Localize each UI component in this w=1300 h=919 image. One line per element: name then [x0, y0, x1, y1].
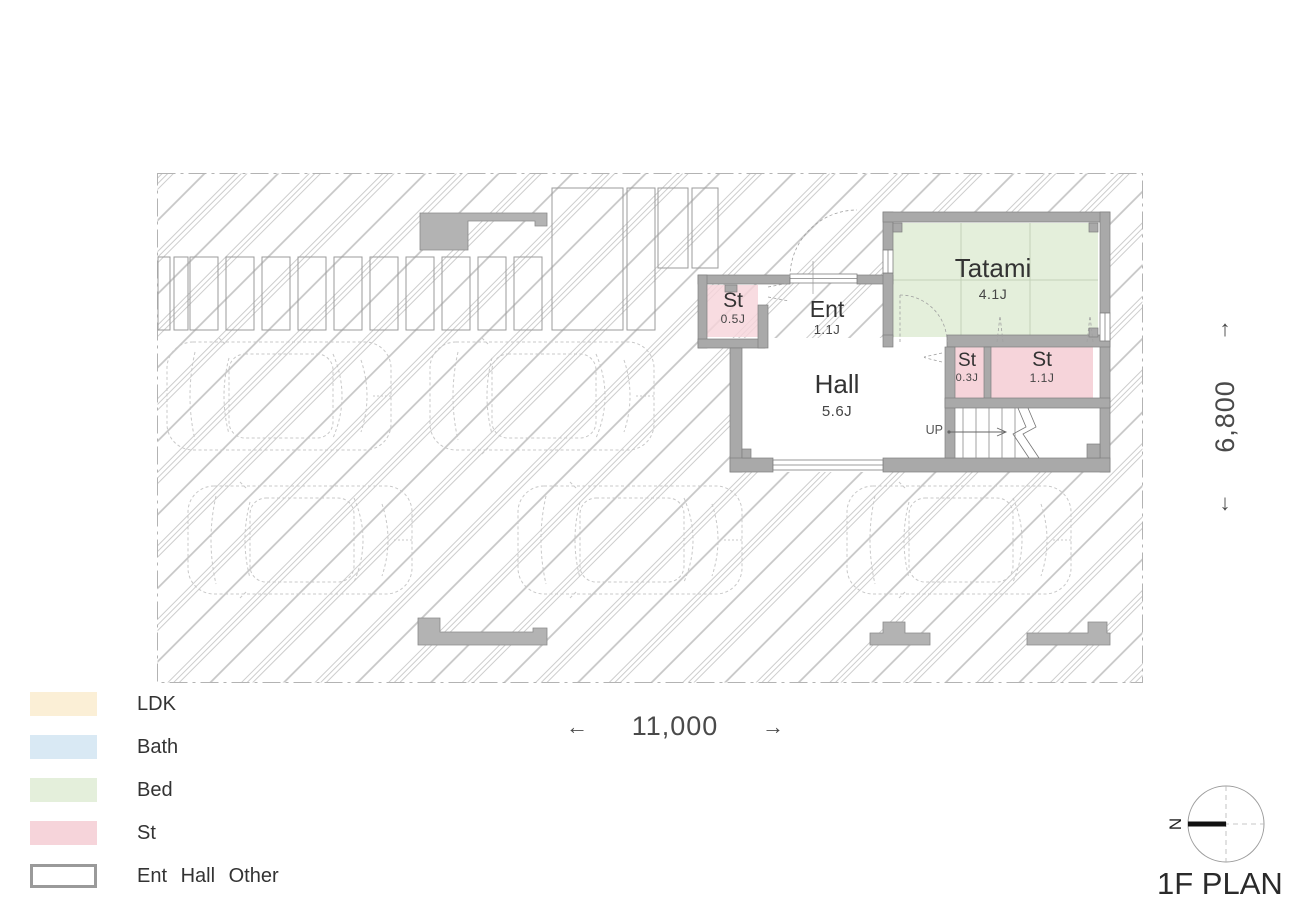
- legend-item-st: St: [30, 820, 279, 846]
- room-name: St: [721, 289, 746, 313]
- room-area: 4.1J: [955, 286, 1032, 302]
- room-name: Ent: [810, 296, 845, 322]
- room-label-hall: Hall 5.6J: [815, 370, 860, 420]
- arrow-left-icon: ←: [566, 714, 588, 740]
- legend-label: LDK: [137, 693, 176, 716]
- page-title: 1F PLAN: [1157, 866, 1283, 902]
- stairs-area: [955, 408, 1100, 458]
- room-label-st-11: St 1.1J: [1030, 348, 1055, 386]
- dimension-width: ← 11,000 →: [566, 711, 784, 742]
- dimension-height-value: 6,800: [1210, 380, 1241, 453]
- legend-swatch-other: [30, 864, 97, 888]
- room-area: 1.1J: [1030, 372, 1055, 386]
- north-label: N: [1166, 818, 1185, 830]
- legend-label: Bath: [137, 736, 178, 759]
- legend-swatch-st: [30, 821, 97, 845]
- legend-swatch-bath: [30, 735, 97, 759]
- arrow-down-icon: ↓: [1220, 490, 1231, 516]
- legend-swatch-bed: [30, 778, 97, 802]
- room-name: Hall: [815, 370, 860, 400]
- legend-item-ldk: LDK: [30, 691, 279, 717]
- stairs-up-label: UP: [905, 423, 943, 437]
- arrow-up-icon: ↑: [1220, 316, 1231, 342]
- legend-swatch-ldk: [30, 692, 97, 716]
- legend-label: St: [137, 822, 156, 845]
- north-compass: N: [1164, 776, 1274, 872]
- floor-plan-page: { "title": "1F PLAN", "compass": { "nort…: [0, 0, 1300, 919]
- legend-item-bed: Bed: [30, 777, 279, 803]
- room-label-ent: Ent 1.1J: [810, 296, 845, 338]
- room-name: St: [1030, 348, 1055, 372]
- legend-label: Ent Hall Other: [137, 865, 279, 888]
- legend: LDK Bath Bed St Ent Hall Other: [30, 691, 279, 906]
- legend-item-bath: Bath: [30, 734, 279, 760]
- dimension-width-value: 11,000: [632, 711, 719, 742]
- room-area: 5.6J: [815, 403, 860, 420]
- room-name: Tatami: [955, 254, 1032, 284]
- site-plan-drawing: [157, 173, 1143, 683]
- room-name: St: [956, 350, 979, 372]
- room-label-tatami: Tatami 4.1J: [955, 254, 1032, 302]
- arrow-right-icon: →: [762, 714, 784, 740]
- legend-item-other: Ent Hall Other: [30, 863, 279, 889]
- room-area: 1.1J: [810, 323, 845, 338]
- legend-label: Bed: [137, 779, 173, 802]
- room-area: 0.3J: [956, 372, 979, 385]
- room-label-st-05: St 0.5J: [721, 289, 746, 327]
- room-area: 0.5J: [721, 313, 746, 327]
- room-label-st-03: St 0.3J: [956, 350, 979, 384]
- dimension-height: ↑ 6,800 ↓: [1198, 316, 1252, 516]
